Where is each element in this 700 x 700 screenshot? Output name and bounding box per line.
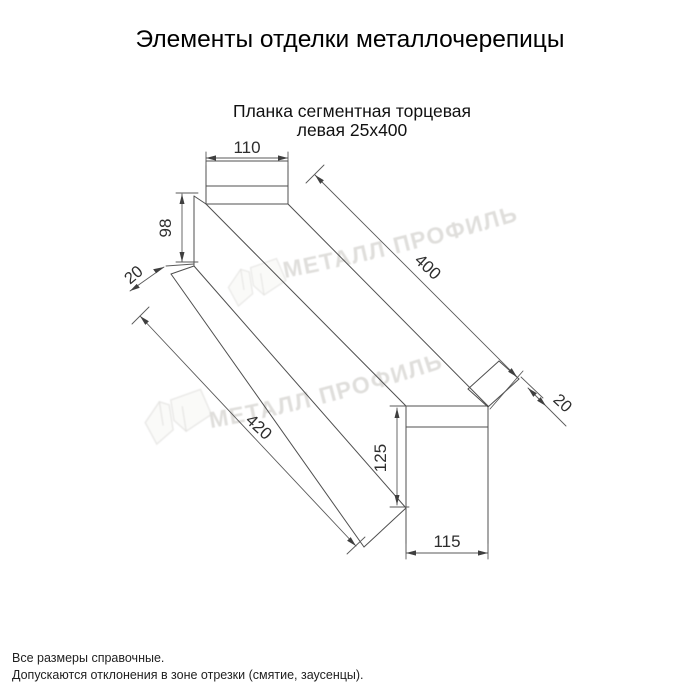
metal-profil-logo-icon bbox=[225, 258, 289, 308]
dim-label-left-height: 98 bbox=[156, 219, 175, 238]
watermark-text: МЕТАЛЛ ПРОФИЛЬ bbox=[207, 347, 446, 433]
dim-label-length-top: 400 bbox=[411, 250, 445, 283]
dim-left-height: 98 bbox=[156, 193, 198, 262]
dim-label-bottom-width: 115 bbox=[433, 532, 460, 551]
product-subtitle-line2: левая 25х400 bbox=[297, 120, 408, 140]
page-title: Элементы отделки металлочерепицы bbox=[136, 26, 565, 53]
footnote-line2: Допускаются отклонения в зоне отрезки (с… bbox=[12, 668, 364, 682]
dim-label-right-height: 125 bbox=[371, 444, 390, 472]
metal-profil-logo-icon bbox=[141, 388, 214, 445]
far-end-face bbox=[171, 161, 288, 274]
dim-bottom-width: 115 bbox=[406, 532, 488, 559]
dim-label-right-flange: 20 bbox=[550, 391, 576, 417]
dim-right-height: 125 bbox=[371, 406, 409, 507]
dim-label-top-width: 110 bbox=[233, 138, 260, 157]
watermark-text: МЕТАЛЛ ПРОФИЛЬ bbox=[281, 200, 521, 283]
footnote-line1: Все размеры справочные. bbox=[12, 651, 164, 665]
dim-label-left-flange: 20 bbox=[121, 262, 147, 288]
drawing-page: МЕТАЛЛ ПРОФИЛЬ МЕТАЛЛ ПРОФИЛЬ Элементы о… bbox=[0, 0, 700, 700]
product-subtitle-line1: Планка сегментная торцевая bbox=[233, 101, 471, 121]
watermark-lower: МЕТАЛЛ ПРОФИЛЬ bbox=[141, 347, 446, 445]
watermark-upper: МЕТАЛЛ ПРОФИЛЬ bbox=[225, 200, 521, 307]
technical-drawing: МЕТАЛЛ ПРОФИЛЬ МЕТАЛЛ ПРОФИЛЬ Элементы о… bbox=[0, 0, 700, 700]
dim-right-flange: 20 bbox=[521, 377, 575, 426]
near-end-face bbox=[406, 406, 488, 552]
dim-left-flange: 20 bbox=[121, 262, 194, 291]
